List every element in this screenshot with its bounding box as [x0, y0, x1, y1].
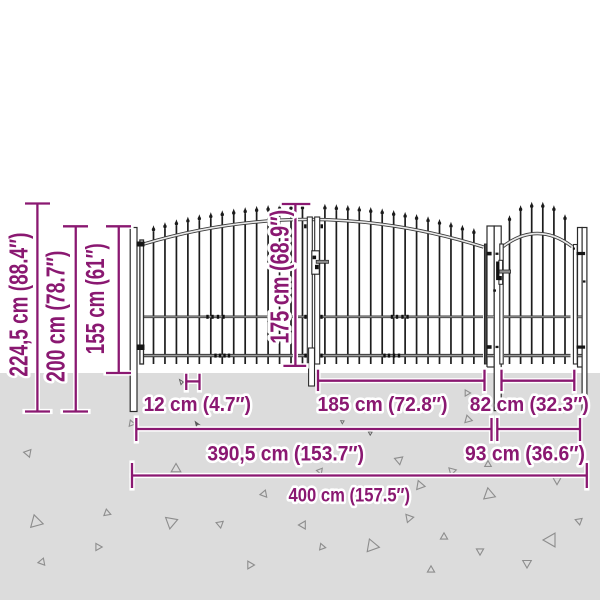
- svg-text:82 cm (32.3″): 82 cm (32.3″): [470, 394, 589, 416]
- svg-text:224,5 cm (88.4″): 224,5 cm (88.4″): [6, 233, 34, 377]
- svg-text:200 cm (78.7″): 200 cm (78.7″): [43, 251, 71, 382]
- svg-text:12 cm (4.7″): 12 cm (4.7″): [144, 394, 251, 416]
- svg-text:400 cm (157.5″): 400 cm (157.5″): [289, 486, 411, 507]
- svg-text:155 cm (61″): 155 cm (61″): [82, 243, 110, 354]
- svg-text:175 cm (68.9″): 175 cm (68.9″): [266, 210, 294, 344]
- svg-text:390,5 cm (153.7″): 390,5 cm (153.7″): [207, 443, 364, 466]
- svg-text:185 cm (72.8″): 185 cm (72.8″): [318, 394, 448, 416]
- svg-text:93 cm (36.6″): 93 cm (36.6″): [465, 443, 585, 466]
